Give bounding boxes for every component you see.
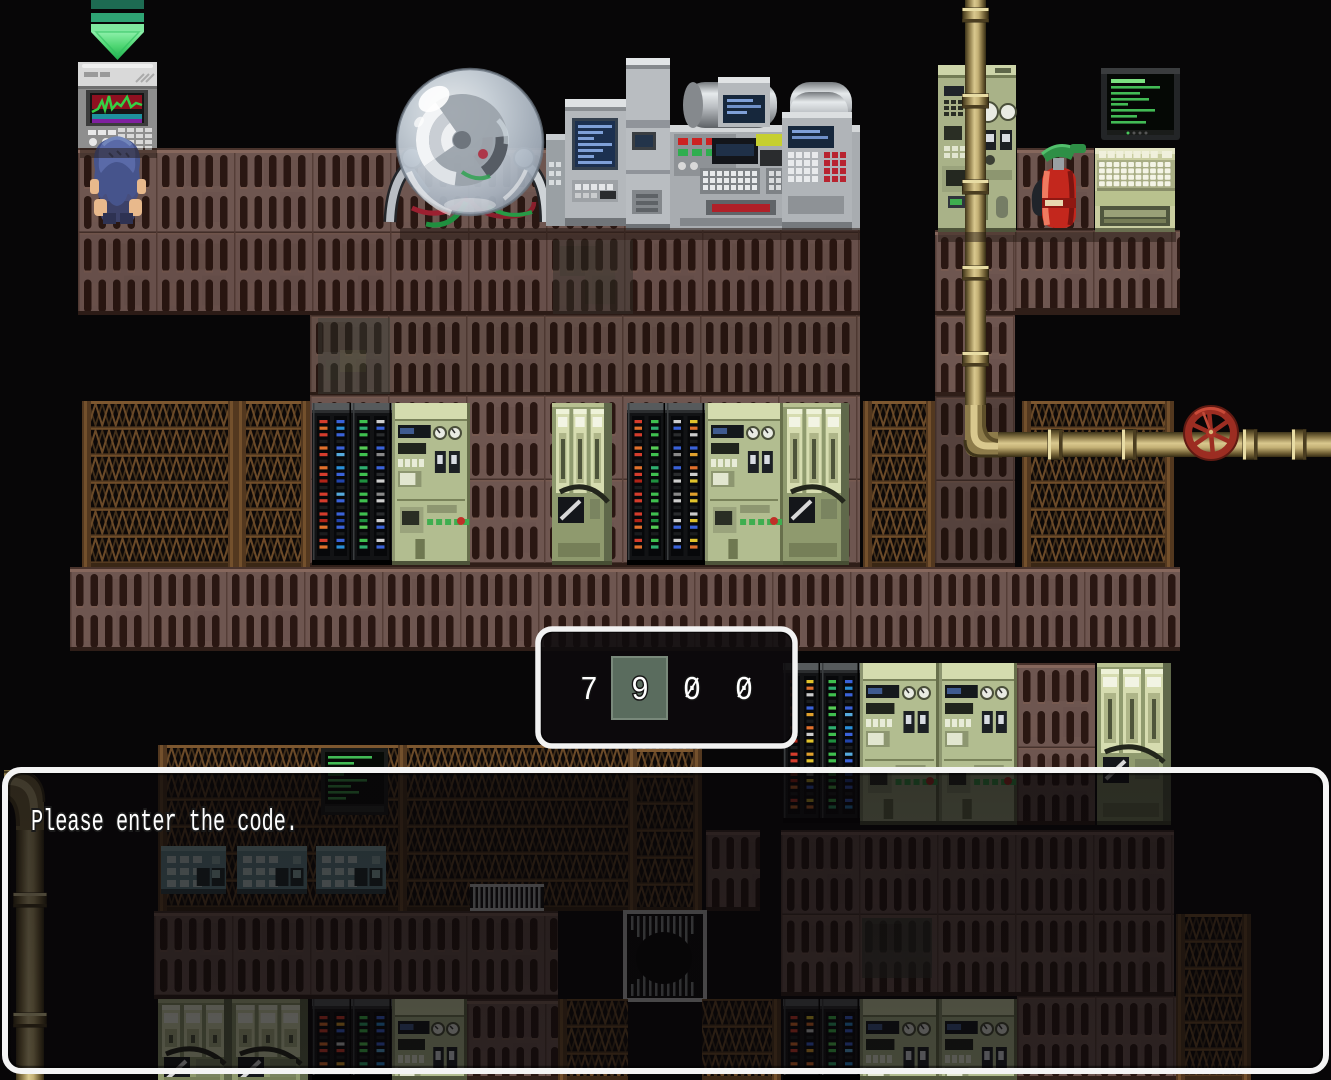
svg-text:9: 9 xyxy=(631,672,649,709)
svg-text:7: 7 xyxy=(580,672,598,709)
svg-text:0: 0 xyxy=(683,672,701,709)
svg-text:Please enter the code.: Please enter the code. xyxy=(31,805,298,840)
svg-text:0: 0 xyxy=(735,672,753,709)
